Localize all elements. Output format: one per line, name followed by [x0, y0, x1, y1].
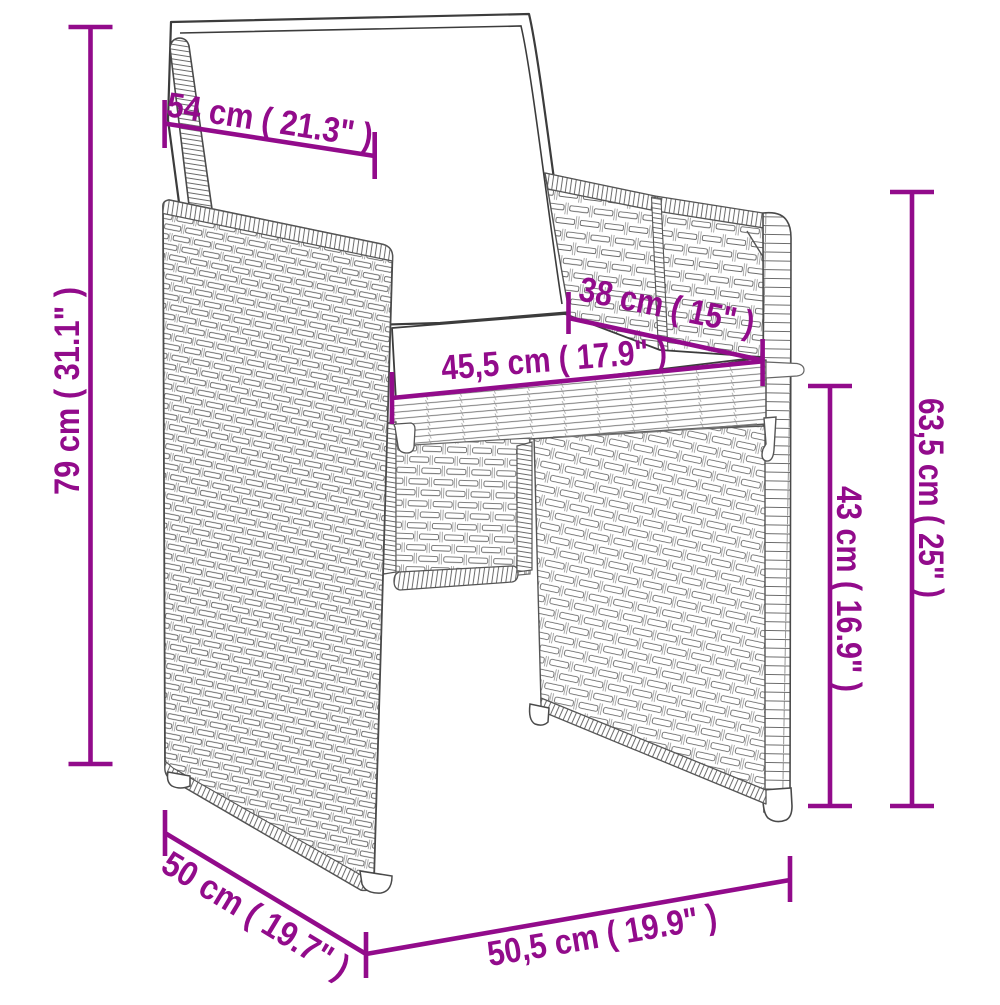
svg-text:63,5 cm ( 25" ): 63,5 cm ( 25" ) — [911, 398, 950, 598]
svg-text:79 cm ( 31.1" ): 79 cm ( 31.1" ) — [48, 287, 87, 495]
svg-text:43 cm ( 16.9" ): 43 cm ( 16.9" ) — [829, 486, 868, 692]
